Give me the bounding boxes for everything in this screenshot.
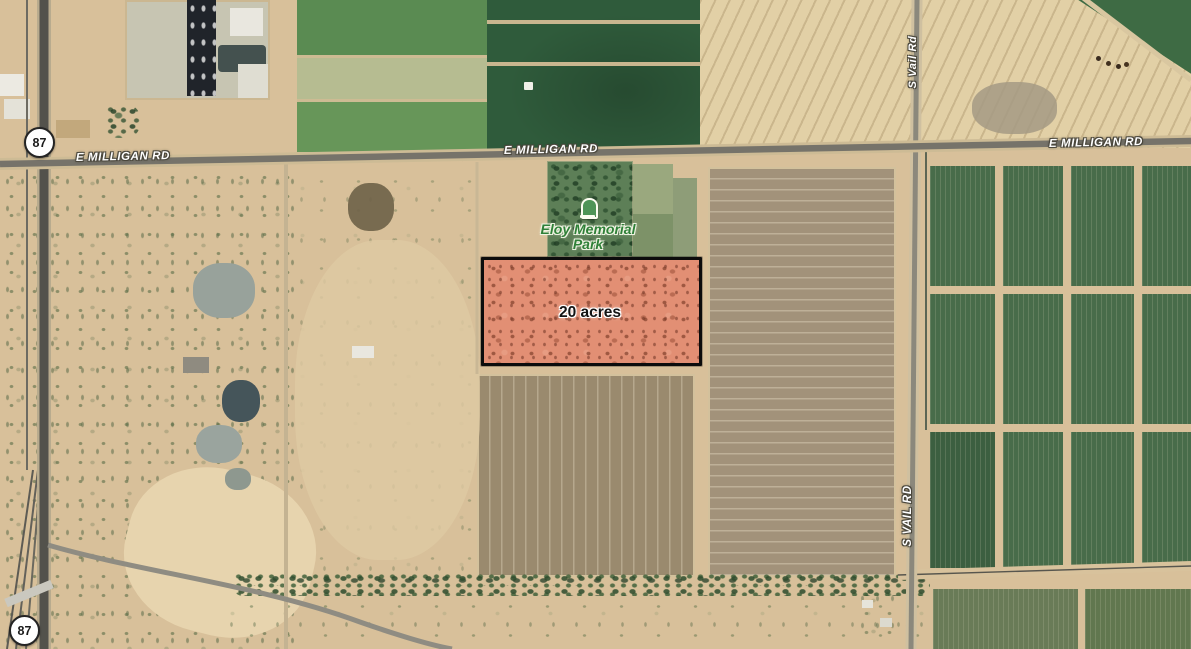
- park-name-label: Eloy Memorial Park: [541, 222, 636, 252]
- road-label-vail-upper: S Vail Rd: [907, 36, 919, 89]
- tombstone-icon: [581, 198, 598, 219]
- road-label-milligan-center: E MILLIGAN RD: [504, 143, 598, 157]
- route-87-shield-top: 87: [24, 127, 55, 158]
- diagonal-field-road: [1082, 0, 1191, 80]
- route-87-shield-bottom: 87: [9, 615, 40, 646]
- curved-road: [48, 545, 452, 649]
- park-name-line2: Park: [541, 237, 636, 252]
- road-label-milligan-right: E MILLIGAN RD: [1049, 136, 1143, 150]
- parcel-acreage-label: 20 acres: [559, 304, 621, 322]
- park-name-line1: Eloy Memorial: [541, 222, 636, 237]
- route-87-number: 87: [33, 136, 47, 150]
- road-label-vail-lower: S VAIL RD: [902, 485, 914, 546]
- road-label-milligan-left: E MILLIGAN RD: [76, 150, 170, 164]
- route-87-number: 87: [18, 624, 32, 638]
- satellite-map-canvas[interactable]: 20 acres E MILLIGAN RD E MILLIGAN RD E M…: [0, 0, 1191, 649]
